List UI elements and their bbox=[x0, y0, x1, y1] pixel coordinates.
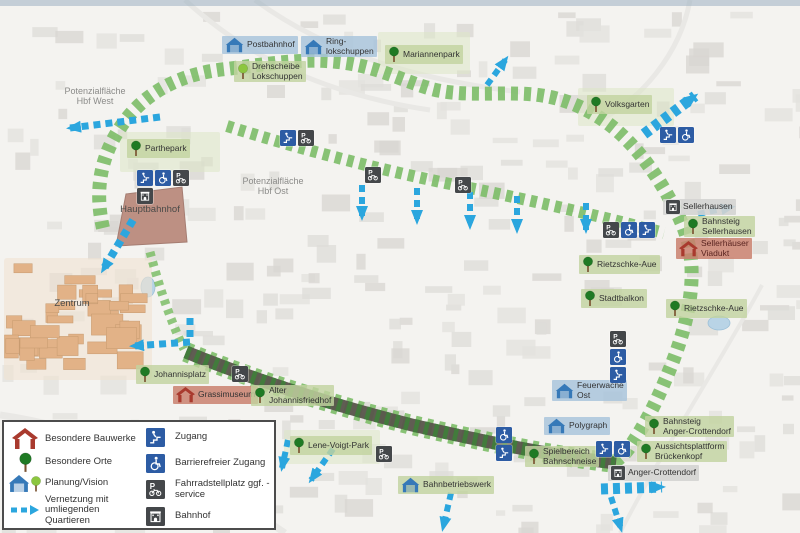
planung-icon bbox=[10, 474, 40, 493]
legend-item-label: Fahrradstellplatz ggf. -service bbox=[175, 479, 270, 500]
legend-item-red-house: Besondere Bauwerke bbox=[10, 428, 140, 450]
red-house-icon bbox=[10, 428, 40, 450]
zugang-icon bbox=[140, 428, 170, 447]
wheelchair-icon bbox=[140, 454, 170, 473]
pavilion-icon bbox=[8, 474, 30, 493]
legend-item-p-bike: Fahrradstellplatz ggf. -service bbox=[140, 479, 270, 500]
bahnhof-icon bbox=[140, 507, 170, 526]
legend-item-bahnhof: Bahnhof bbox=[140, 507, 270, 526]
legend-item-label: Planung/Vision bbox=[45, 478, 108, 488]
connection-arrow bbox=[443, 493, 451, 528]
red-house-icon bbox=[12, 428, 38, 450]
legend-item-label: Barrierefreier Zugang bbox=[175, 458, 265, 468]
connection-arrow bbox=[698, 207, 732, 214]
map-top-edge bbox=[0, 0, 800, 6]
legend-item-wheelchair: Barrierefreier Zugang bbox=[140, 454, 270, 473]
legend-item-tree: Besondere Orte bbox=[10, 452, 140, 473]
legend-item-planung: Planung/Vision bbox=[10, 474, 140, 493]
tree-icon bbox=[18, 452, 33, 473]
tree-light-icon bbox=[30, 475, 42, 493]
p-bike-icon bbox=[146, 480, 165, 499]
blue-arrow-icon bbox=[10, 505, 40, 515]
zugang-icon bbox=[146, 428, 165, 447]
legend-item-blue-arrow: Vernetzung mit umliegenden Quartieren bbox=[10, 495, 140, 526]
connection-arrow bbox=[601, 487, 662, 489]
legend-item-zugang: Zugang bbox=[140, 428, 270, 447]
connection-arrow bbox=[487, 59, 506, 85]
tree-icon bbox=[10, 452, 40, 473]
legend-item-label: Besondere Orte bbox=[45, 457, 112, 467]
wheelchair-icon bbox=[146, 454, 165, 473]
zentrum-district bbox=[4, 258, 152, 380]
legend-column-right: ZugangBarrierefreier ZugangFahrradstellp… bbox=[140, 428, 270, 526]
legend-item-label: Vernetzung mit umliegenden Quartieren bbox=[45, 495, 137, 526]
map-canvas: P Postb bbox=[0, 0, 800, 533]
p-bike-icon bbox=[140, 480, 170, 499]
legend-column-left: Besondere BauwerkeBesondere OrtePlanung/… bbox=[10, 428, 140, 526]
bahnhof-icon bbox=[146, 507, 165, 526]
legend: Besondere BauwerkeBesondere OrtePlanung/… bbox=[2, 420, 276, 530]
legend-item-label: Bahnhof bbox=[175, 511, 210, 521]
legend-item-label: Zugang bbox=[175, 432, 207, 442]
connection-arrow bbox=[70, 117, 160, 128]
legend-item-label: Besondere Bauwerke bbox=[45, 434, 136, 444]
